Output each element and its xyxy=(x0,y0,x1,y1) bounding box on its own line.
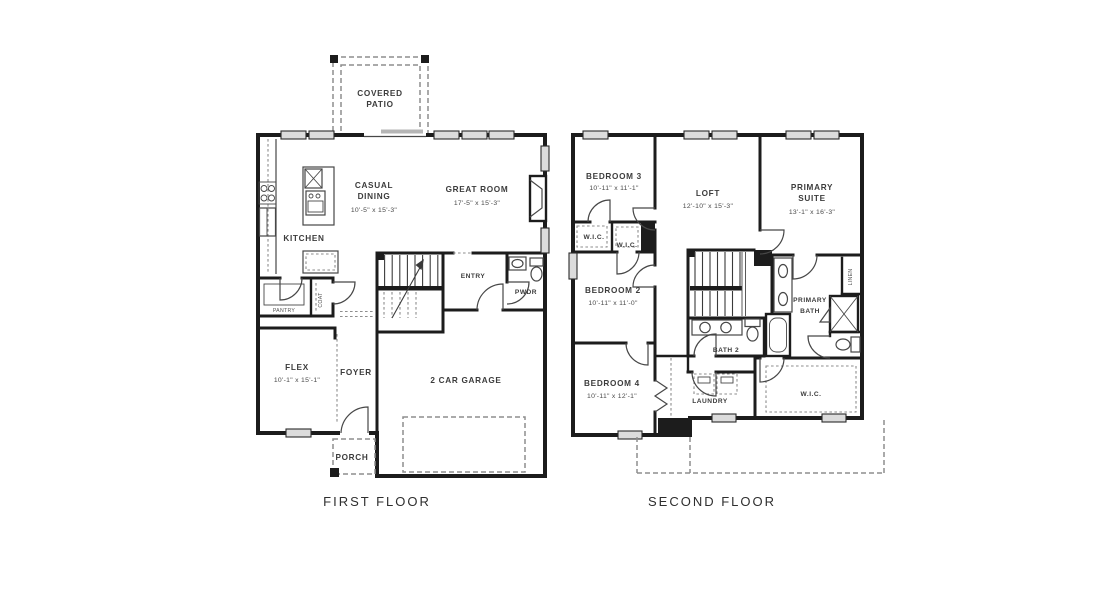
primary-bath-door-icon xyxy=(793,255,817,279)
bedroom2-label: BEDROOM 2 xyxy=(585,286,641,295)
patio-post-icon xyxy=(330,55,338,63)
second-floor-title: SECOND FLOOR xyxy=(648,494,776,509)
toilet-icon xyxy=(530,258,543,281)
second-floor-plan: BEDROOM 3 10'-11" x 11'-1" LOFT 12'-10" … xyxy=(569,131,884,473)
flex-label: FLEX xyxy=(285,363,309,372)
window-icon xyxy=(541,146,549,171)
garage-entry-door-icon xyxy=(477,284,503,310)
great-room-dims: 17'-5" x 15'-3" xyxy=(454,200,501,207)
kitchen-label: KITCHEN xyxy=(283,234,324,243)
garage-door-outline xyxy=(403,417,525,472)
window-icon xyxy=(489,131,514,139)
kitchen-island xyxy=(303,167,334,225)
flex-dims: 10'-1" x 15'-1" xyxy=(274,377,321,384)
bath2-label: BATH 2 xyxy=(713,347,739,354)
first-floor-labels: COVERED PATIO CASUAL DINING 10'-5" x 15'… xyxy=(273,89,537,462)
garage-label: 2 CAR GARAGE xyxy=(430,376,501,385)
powder-fixtures xyxy=(509,257,543,281)
coat-door-icon xyxy=(333,282,355,304)
loft-dims: 12'-10" x 15'-3" xyxy=(683,203,734,210)
window-icon xyxy=(814,131,839,139)
covered-patio-label: COVERED xyxy=(357,89,402,98)
bedroom4-dims: 10'-11" x 12'-1" xyxy=(587,393,637,400)
entry-label: ENTRY xyxy=(461,273,486,280)
foyer-label: FOYER xyxy=(340,368,372,377)
window-icon xyxy=(286,429,311,437)
primary-bath-label2: BATH xyxy=(800,308,820,315)
pantry-door-icon xyxy=(280,278,302,300)
window-icon xyxy=(712,414,736,422)
window-icon xyxy=(822,414,846,422)
bedroom3-label: BEDROOM 3 xyxy=(586,172,642,181)
floorplan-drawing: COVERED PATIO CASUAL DINING 10'-5" x 15'… xyxy=(0,0,1118,602)
primary-suite-label: PRIMARY xyxy=(791,183,833,192)
first-floor-plan: COVERED PATIO CASUAL DINING 10'-5" x 15'… xyxy=(258,55,549,477)
bedroom2-door-icon xyxy=(633,265,655,287)
sink-icon xyxy=(721,322,731,332)
bedroom2-dims: 10'-11" x 11'-0" xyxy=(588,300,638,307)
linen-label: LINEN xyxy=(848,269,854,286)
laundry-door-icon xyxy=(692,372,716,396)
bedroom3-dims: 10'-11" x 11'-1" xyxy=(589,185,639,192)
dryer-icon xyxy=(717,374,737,394)
refrigerator-icon xyxy=(260,208,276,236)
laundry-label: LAUNDRY xyxy=(692,398,728,405)
window-icon xyxy=(618,431,642,439)
second-floor-stairs xyxy=(688,250,746,316)
toilet-icon xyxy=(836,337,860,352)
bath2-fixtures xyxy=(692,314,790,356)
primary-suite-label2: SUITE xyxy=(798,194,826,203)
first-floor-interior-walls xyxy=(258,253,545,433)
window-icon xyxy=(684,131,709,139)
window-icon xyxy=(583,131,608,139)
sink-icon xyxy=(779,293,788,306)
toilet-room-door-icon xyxy=(808,336,830,358)
coat-label: COAT xyxy=(318,292,324,308)
window-icon xyxy=(309,131,334,139)
sink-icon xyxy=(779,265,788,278)
casual-dining-dims: 10'-5" x 15'-3" xyxy=(351,207,398,214)
bedroom4-door-icon xyxy=(626,343,648,365)
first-floor-title: FIRST FLOOR xyxy=(323,494,431,509)
porch-post-icon xyxy=(330,468,339,477)
window-icon xyxy=(281,131,306,139)
primary-bath-label: PRIMARY xyxy=(793,297,827,304)
vanity-icon xyxy=(774,258,792,312)
window-icon xyxy=(434,131,459,139)
fireplace-icon xyxy=(530,176,546,221)
great-room-label: GREAT ROOM xyxy=(446,185,509,194)
washer-icon xyxy=(694,374,714,394)
bathtub-icon xyxy=(766,314,790,356)
first-floor-stairs xyxy=(377,253,443,318)
wic-primary-label: W.I.C. xyxy=(801,391,822,398)
loft-label: LOFT xyxy=(696,189,720,198)
window-icon xyxy=(712,131,737,139)
range-icon xyxy=(306,191,325,215)
primary-suite-dims: 13'-1" x 16'-3" xyxy=(789,209,836,216)
wic-bedroom3-door-icon xyxy=(588,200,610,222)
patio-post-icon xyxy=(421,55,429,63)
pantry-label: PANTRY xyxy=(273,308,296,314)
first-floor-dashed-lines xyxy=(337,253,473,424)
porch-label: PORCH xyxy=(335,453,368,462)
wic-bedroom2-door-icon xyxy=(617,252,639,274)
window-icon xyxy=(569,253,577,279)
sink-icon xyxy=(512,260,523,268)
wic-primary-door-icon xyxy=(760,358,784,382)
floorplan-canvas: COVERED PATIO CASUAL DINING 10'-5" x 15'… xyxy=(0,0,1118,602)
bedroom4-label: BEDROOM 4 xyxy=(584,379,640,388)
window-icon xyxy=(541,228,549,253)
wic-bedroom3-label: W.I.C. xyxy=(584,234,605,241)
window-icon xyxy=(462,131,487,139)
powder-label: PWDR xyxy=(515,289,537,296)
kitchen-fixtures xyxy=(259,139,338,274)
bifold-door-icon xyxy=(655,380,667,412)
casual-dining-label: CASUAL xyxy=(355,181,393,190)
covered-patio-label2: PATIO xyxy=(366,100,393,109)
window-icon xyxy=(786,131,811,139)
casual-dining-label2: DINING xyxy=(358,192,391,201)
toilet-icon xyxy=(745,319,760,341)
sink-icon xyxy=(700,322,710,332)
base-cabinet xyxy=(303,251,338,273)
wic-bedroom2-label: W.I.C. xyxy=(617,242,638,249)
